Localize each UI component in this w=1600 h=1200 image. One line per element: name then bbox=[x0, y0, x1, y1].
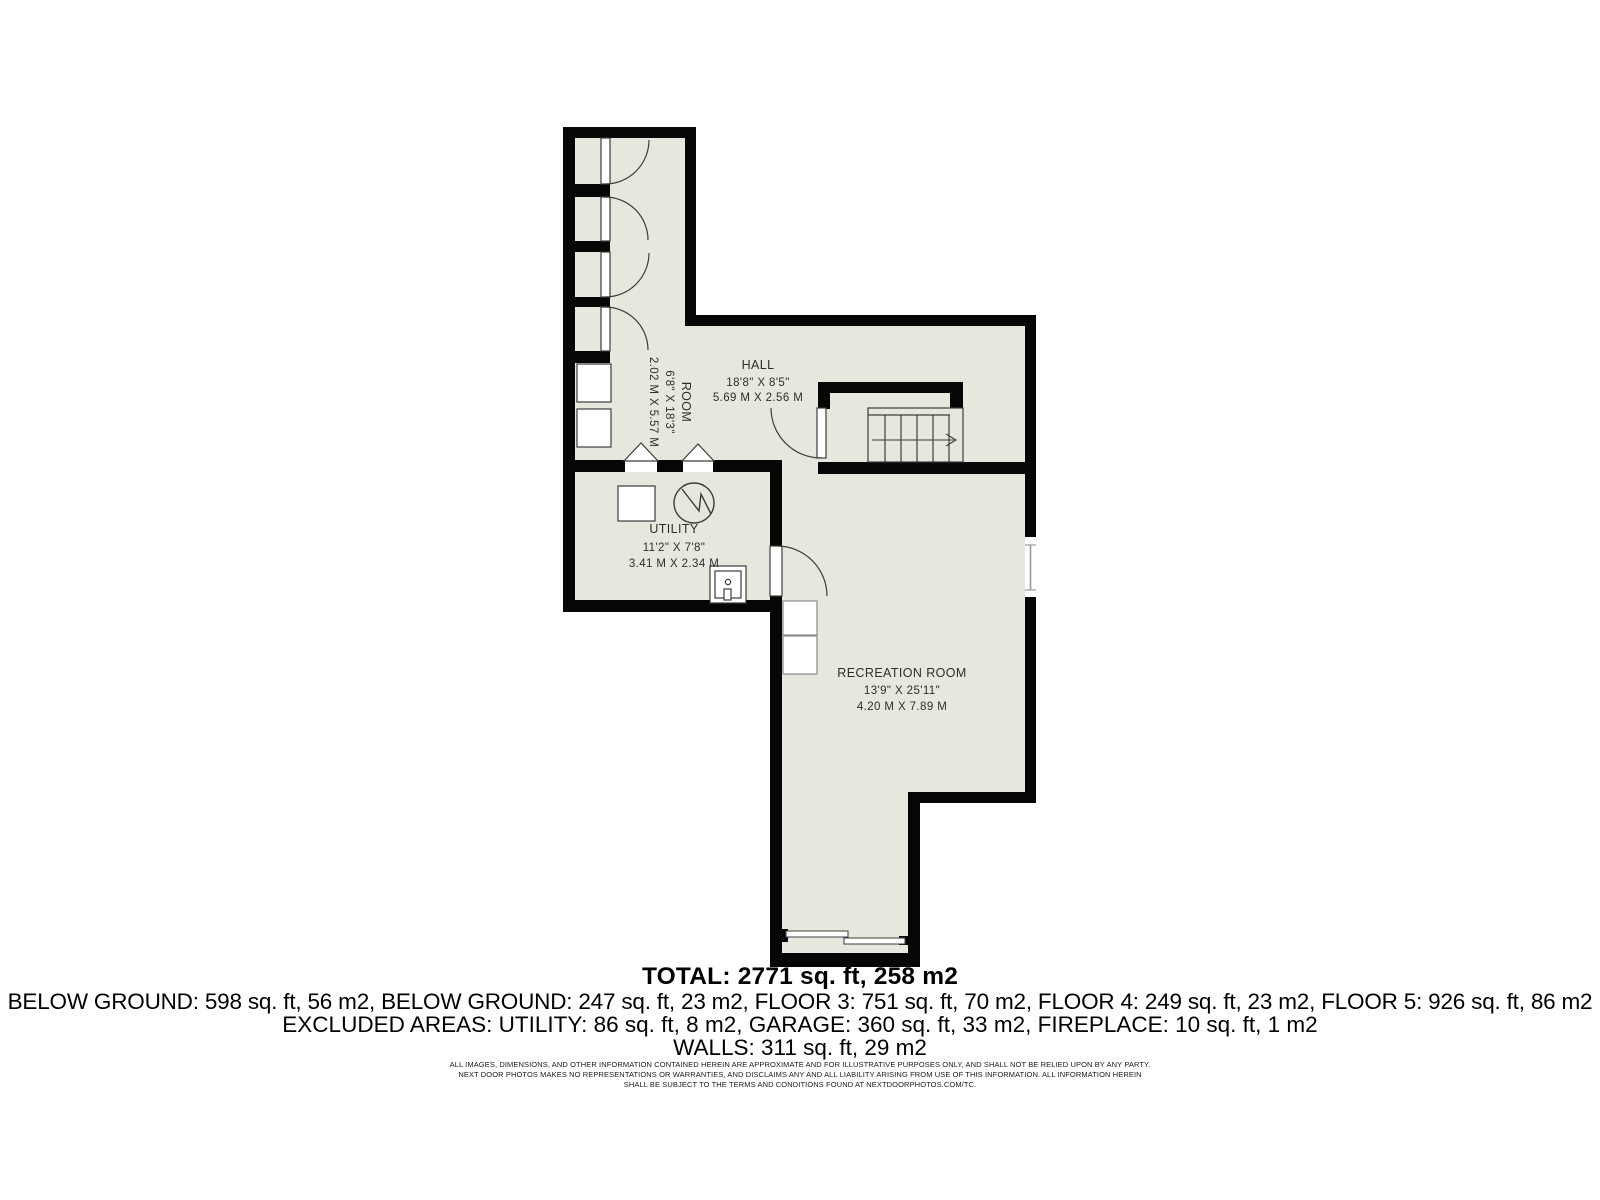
door-swing-arc bbox=[605, 307, 648, 350]
wall-utility-bottom bbox=[563, 600, 782, 612]
room-dim-metric: 2.02 M X 5.57 M bbox=[647, 357, 659, 447]
floor-area bbox=[563, 127, 1036, 965]
room-name: RECREATION ROOM bbox=[837, 666, 966, 680]
wall-lower-left bbox=[770, 596, 782, 965]
utility-fixtures bbox=[618, 483, 746, 603]
door-leaf bbox=[770, 546, 782, 596]
wall-room-utility-divider bbox=[657, 460, 683, 472]
wall-openings bbox=[625, 460, 713, 472]
laundry-tub-icon bbox=[710, 566, 746, 603]
closet-doors bbox=[601, 138, 649, 351]
room-dim-imperial: 13'9" X 25'11" bbox=[864, 685, 940, 697]
room-dim-imperial: 11'2" X 7'8" bbox=[643, 542, 706, 554]
room-label-recreation: RECREATION ROOM 13'9" X 25'11" 4.20 M X … bbox=[837, 666, 966, 713]
wall-hall-bottom bbox=[818, 462, 1025, 474]
appliance-icon bbox=[618, 486, 655, 521]
cabinet-icon bbox=[783, 601, 817, 635]
room-name: ROOM bbox=[679, 382, 693, 423]
wall-room-top bbox=[563, 127, 696, 138]
door-leaf bbox=[601, 197, 610, 241]
wall-left bbox=[563, 127, 575, 612]
disclaimer-line: NEXT DOOR PHOTOS MAKES NO REPRESENTATION… bbox=[0, 1070, 1600, 1080]
recreation-fixtures bbox=[783, 601, 817, 674]
disclaimer-line: ALL IMAGES, DIMENSIONS, AND OTHER INFORM… bbox=[0, 1060, 1600, 1070]
wall-lower-right bbox=[908, 792, 920, 965]
total-area-text: TOTAL: 2771 sq. ft, 258 m2 bbox=[0, 963, 1600, 991]
stairs-direction-arrow bbox=[872, 434, 956, 446]
cabinet-icon bbox=[577, 409, 611, 447]
room-label-utility: UTILITY 11'2" X 7'8" 3.41 M X 2.34 M bbox=[629, 522, 719, 570]
sliding-door-icon bbox=[779, 929, 909, 945]
disclaimer: ALL IMAGES, DIMENSIONS, AND OTHER INFORM… bbox=[0, 1060, 1600, 1089]
walls-area-text: WALLS: 311 sq. ft, 29 m2 bbox=[0, 1035, 1600, 1061]
door-swing-arc bbox=[777, 546, 827, 596]
room-label-room: ROOM 6'8" X 18'3" 2.02 M X 5.57 M bbox=[647, 357, 693, 447]
room-name: UTILITY bbox=[649, 522, 699, 536]
door-swing-arc bbox=[605, 253, 649, 297]
stair-outline bbox=[868, 408, 963, 462]
room-fixtures bbox=[577, 364, 611, 447]
bifold-opening bbox=[683, 460, 713, 472]
door-leaf bbox=[601, 307, 610, 351]
bifold-opening bbox=[625, 460, 657, 472]
walls bbox=[563, 127, 1036, 967]
wall-utility-rec-divider-upper bbox=[770, 460, 782, 546]
door-leaf bbox=[817, 408, 826, 458]
room-label-hall: HALL 18'8" X 8'5" 5.69 M X 2.56 M bbox=[713, 358, 803, 404]
bifold-door-icon bbox=[682, 444, 714, 461]
utility-door bbox=[770, 546, 827, 596]
door-leaf bbox=[601, 252, 610, 297]
wall-closet-stub bbox=[575, 184, 610, 197]
bifold-door-icon bbox=[624, 443, 658, 461]
room-dim-metric: 3.41 M X 2.34 M bbox=[629, 558, 719, 570]
wall-stair-top bbox=[818, 382, 963, 393]
wall-stair-right-stub bbox=[950, 393, 963, 416]
room-dim-imperial: 18'8" X 8'5" bbox=[726, 377, 789, 389]
room-dim-imperial: 6'8" X 18'3" bbox=[663, 370, 675, 433]
door-leaf bbox=[601, 138, 610, 184]
wall-stair-left-stub bbox=[818, 393, 830, 409]
door-swing-arc bbox=[605, 140, 649, 184]
fan-icon bbox=[674, 483, 714, 523]
wall-room-utility-divider bbox=[563, 460, 625, 472]
wall-closet-stub bbox=[575, 351, 610, 363]
cabinet-icon bbox=[783, 636, 817, 674]
wall-closet-stub bbox=[575, 297, 610, 307]
staircase bbox=[868, 408, 963, 462]
wall-step-bottom bbox=[908, 792, 1036, 803]
room-dim-metric: 5.69 M X 2.56 M bbox=[713, 392, 803, 404]
room-name: HALL bbox=[742, 358, 775, 372]
cabinet-icon bbox=[577, 364, 611, 402]
room-dim-metric: 4.20 M X 7.89 M bbox=[857, 701, 947, 713]
disclaimer-line: SHALL BE SUBJECT TO THE TERMS AND CONDIT… bbox=[0, 1080, 1600, 1090]
floorplan-page: { "plan": { "colors": { "wall": "#060606… bbox=[0, 0, 1600, 1200]
wall-closet-stub bbox=[575, 241, 610, 252]
door-swing-arc bbox=[605, 197, 648, 240]
bifold-doors bbox=[624, 443, 714, 461]
wall-room-utility-divider bbox=[713, 460, 782, 472]
window-icon bbox=[1025, 537, 1036, 597]
door-swing-arc bbox=[771, 408, 821, 458]
wall-room-right bbox=[685, 127, 696, 326]
wall-right bbox=[1025, 315, 1036, 803]
wall-hall-top bbox=[685, 315, 1036, 326]
hall-door bbox=[771, 408, 826, 458]
